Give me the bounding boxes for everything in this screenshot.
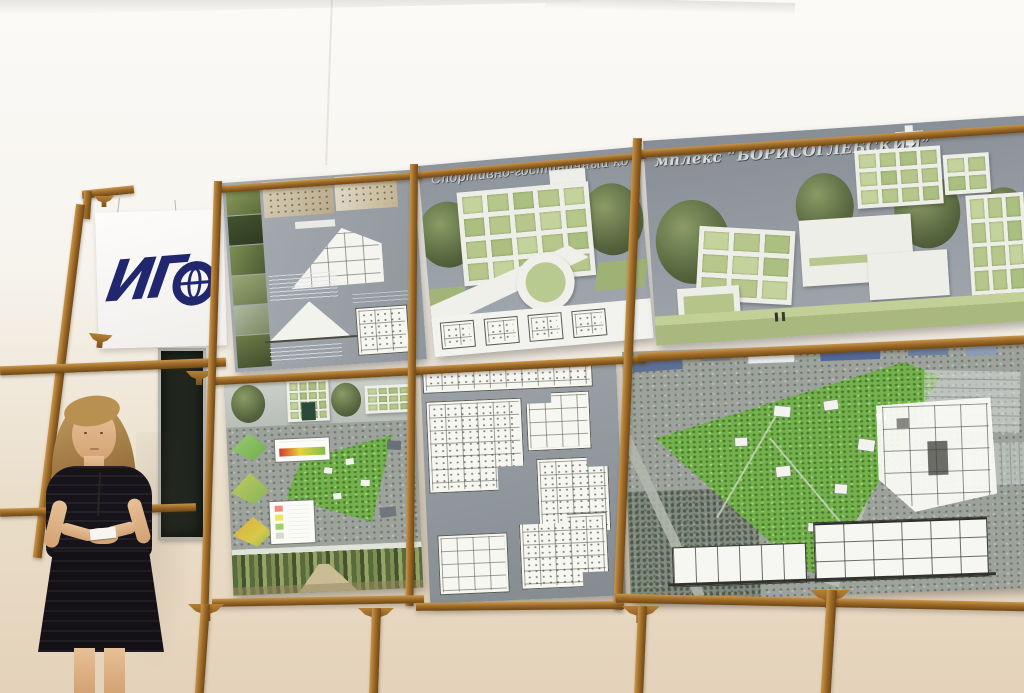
mini-plan: [440, 320, 476, 350]
window-cell: [988, 197, 1003, 218]
floor-plan: [519, 512, 610, 590]
window-cell: [763, 257, 789, 276]
nature-photo: [236, 334, 272, 368]
window-cell: [318, 382, 326, 390]
window-cell: [308, 382, 316, 390]
window-cell: [299, 382, 307, 390]
park-building: [361, 480, 370, 486]
window-cell: [970, 199, 985, 220]
window-cell: [462, 196, 484, 215]
floor-plan-small: [355, 304, 410, 356]
legend-swatch: [275, 515, 283, 521]
window-cell: [487, 193, 509, 212]
window-cell: [514, 213, 536, 232]
nature-photo: [232, 274, 268, 305]
window-cell: [565, 209, 587, 228]
legend-caption: [287, 504, 310, 538]
window-cell: [764, 235, 790, 254]
presenter-leg: [74, 648, 95, 693]
analysis-diagram: [230, 472, 269, 506]
park-building: [835, 484, 848, 494]
trees: [330, 382, 361, 417]
human-figure: [782, 312, 786, 321]
window-cell: [319, 401, 327, 409]
board-siteplan: [224, 370, 423, 596]
presenter-mouth: [90, 448, 99, 450]
floor-plan: [437, 532, 510, 595]
window-cell: [389, 403, 398, 409]
plan-core: [896, 418, 908, 428]
section-drawing: [814, 517, 988, 581]
legend-caption: [279, 440, 325, 446]
park-building: [333, 493, 342, 500]
window-cell: [922, 186, 939, 201]
floor-plan-overlay: [876, 397, 998, 513]
park-building: [858, 438, 875, 451]
legend-gradient-bar: [279, 447, 325, 457]
nature-photo: [227, 214, 263, 245]
section-baseline: [808, 572, 996, 582]
aerial-siteplan: [226, 420, 421, 550]
logo-letters: ИГ: [102, 249, 184, 312]
building-grid-facade: [943, 152, 992, 195]
park-building: [735, 438, 747, 446]
park-building: [324, 467, 333, 474]
frame-corbel: [94, 196, 114, 207]
window-cell: [1009, 244, 1024, 265]
window-cell: [1007, 220, 1022, 241]
city-block-dark: [387, 440, 402, 450]
nature-photo: [234, 304, 270, 335]
window-cell: [291, 411, 299, 419]
window-cell: [947, 158, 965, 173]
window-cell: [378, 396, 387, 402]
forest-panorama: [232, 542, 424, 596]
section-drawing: [673, 544, 806, 587]
window-cell: [969, 174, 987, 189]
window-cell: [703, 231, 729, 250]
building-grid-facade: [965, 192, 1024, 296]
window-cell: [378, 388, 387, 394]
legend-swatch: [275, 524, 283, 530]
mini-plan: [527, 312, 563, 342]
window-cell: [290, 392, 298, 400]
trees: [230, 384, 266, 423]
plan-core: [927, 441, 948, 476]
window-cell: [921, 168, 938, 183]
photo-scene: ИГ Спортивно-гостиничн: [0, 0, 1024, 693]
park-building: [345, 458, 354, 465]
window-cell: [563, 187, 585, 206]
presenter-eye: [84, 432, 87, 434]
label-chip: [295, 219, 335, 229]
entry-dark: [301, 402, 316, 421]
frame-post-lower: [634, 606, 647, 693]
window-cell: [368, 388, 377, 394]
window-cell: [389, 395, 398, 401]
window-cell: [899, 151, 916, 166]
annotation-text: [270, 343, 343, 364]
analysis-diagram: [232, 516, 273, 548]
building-grid-facade: [854, 145, 944, 209]
window-cell: [973, 246, 988, 267]
window-cell: [948, 176, 966, 191]
park-building: [823, 400, 838, 411]
frame-post-lower: [369, 608, 381, 693]
ceiling-edge: [0, 0, 580, 15]
window-cell: [464, 218, 486, 237]
window-cell: [734, 233, 760, 252]
window-cell: [512, 191, 534, 210]
institute-logo: ИГ: [105, 246, 218, 313]
mini-plan: [571, 308, 607, 338]
park-building: [774, 406, 791, 418]
window-cell: [516, 235, 538, 254]
window-cell: [860, 172, 877, 187]
annotation-text: [269, 271, 339, 302]
window-cell: [468, 262, 490, 281]
window-cell: [368, 396, 377, 402]
analysis-diagram: [230, 432, 267, 462]
legend-swatch: [276, 533, 284, 539]
human-figure: [775, 312, 779, 321]
window-cell: [989, 221, 1004, 242]
ceiling-beam: [545, 0, 795, 14]
window-cell: [900, 169, 917, 184]
window-cell: [992, 269, 1007, 290]
window-cell: [1010, 268, 1024, 289]
window-cell: [491, 238, 513, 257]
window-cell: [991, 245, 1006, 266]
presenter-eye: [100, 432, 103, 434]
park-building: [776, 466, 791, 477]
legend-swatch: [275, 506, 283, 512]
window-cell: [379, 404, 388, 410]
window-cell: [702, 254, 728, 273]
window-cell: [389, 387, 398, 393]
frame-rail-bottom: [416, 601, 624, 611]
floor-plan: [425, 398, 525, 494]
mini-plan: [484, 316, 520, 346]
window-cell: [761, 280, 787, 299]
nature-photo: [229, 244, 265, 275]
window-cell: [399, 387, 408, 393]
hedge: [595, 258, 648, 291]
window-cell: [318, 391, 326, 399]
window-cell: [879, 152, 896, 167]
legend-swatches: [269, 500, 315, 544]
window-cell: [861, 190, 878, 205]
window-cell: [538, 189, 560, 208]
board-aerial: [622, 338, 1024, 602]
window-cell: [732, 256, 758, 275]
window-cell: [309, 391, 317, 399]
board-concept: [222, 170, 427, 373]
window-cell: [920, 150, 937, 165]
window-cell: [299, 392, 307, 400]
presenter-skirt: [38, 550, 164, 652]
window-cell: [540, 211, 562, 230]
legend-gradient: [275, 437, 330, 461]
window-cell: [466, 240, 488, 259]
window-cell: [858, 154, 875, 169]
dimension-lines: [352, 290, 409, 306]
wall-seam: [325, 0, 333, 165]
window-cell: [974, 270, 989, 291]
board-main-render: Спортивно-гостиничный ко: [418, 147, 654, 357]
building-grid-facade: [364, 384, 411, 414]
window-cell: [881, 188, 898, 203]
window-cell: [971, 223, 986, 244]
presenter: [18, 392, 198, 693]
window-cell: [368, 404, 377, 410]
window-cell: [489, 215, 511, 234]
city-block-dark: [379, 506, 396, 518]
presenter-leg: [104, 648, 125, 693]
board-floorplans: [420, 359, 626, 603]
window-cell: [319, 410, 327, 418]
window-cell: [1006, 196, 1021, 217]
window-cell: [880, 170, 897, 185]
floor-plan: [525, 391, 591, 452]
building-low: [867, 249, 950, 300]
window-cell: [902, 187, 919, 202]
window-cell: [289, 383, 297, 391]
window-cell: [290, 402, 298, 410]
frame-rail-bottom: [212, 595, 424, 607]
window-cell: [968, 156, 986, 171]
logo-banner: ИГ: [95, 209, 227, 349]
